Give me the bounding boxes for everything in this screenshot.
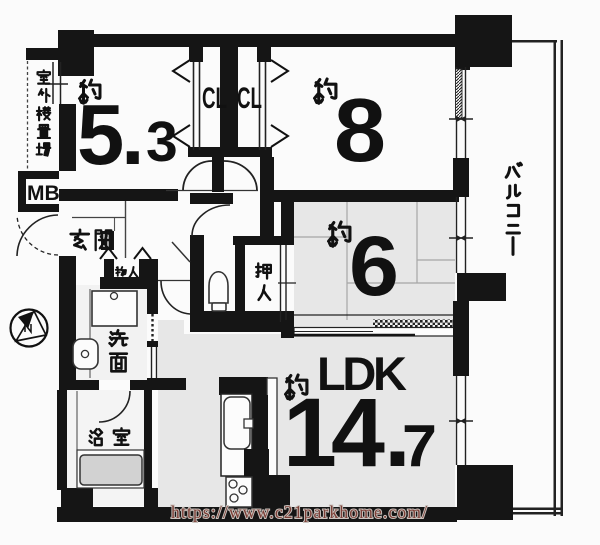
svg-text:CL: CL xyxy=(202,82,227,115)
svg-text:MB: MB xyxy=(27,182,60,205)
svg-text:14: 14 xyxy=(283,378,385,487)
svg-text:6: 6 xyxy=(349,219,399,313)
svg-text:7: 7 xyxy=(402,413,437,479)
svg-text:5: 5 xyxy=(77,88,124,183)
svg-text:3: 3 xyxy=(146,110,178,174)
svg-text:.: . xyxy=(121,88,145,183)
svg-text:https://www.c21parkhome.com/: https://www.c21parkhome.com/ xyxy=(171,502,427,522)
svg-text:CL: CL xyxy=(237,82,262,115)
svg-text:8: 8 xyxy=(334,81,386,181)
